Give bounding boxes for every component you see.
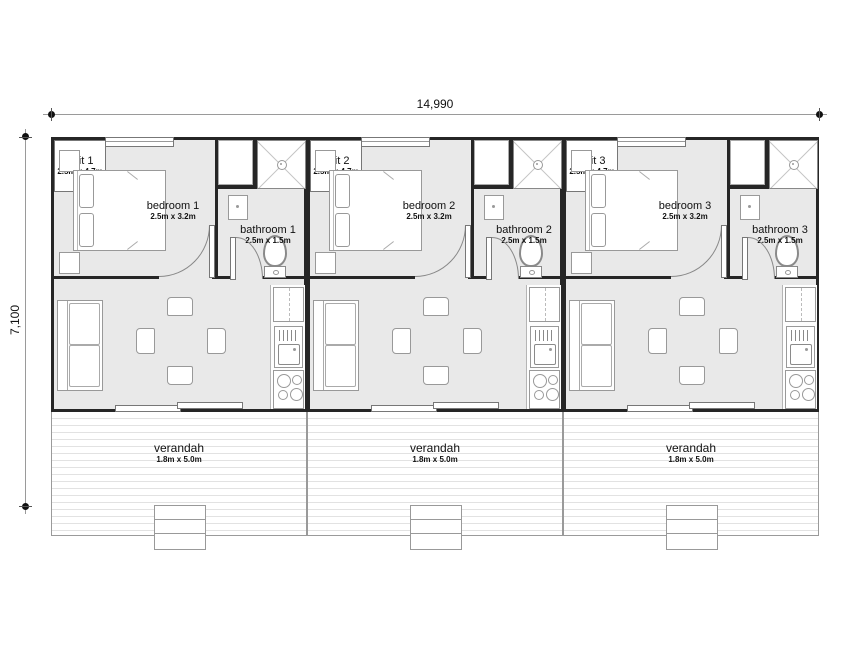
sliding-door-panel bbox=[689, 402, 755, 409]
chair bbox=[679, 297, 705, 316]
bench-dashed-line bbox=[289, 288, 290, 321]
window-glass-line bbox=[362, 141, 429, 142]
shower-drain-icon bbox=[533, 160, 543, 170]
dimension-tick bbox=[19, 137, 32, 138]
sofa-cushion bbox=[581, 345, 612, 387]
stove bbox=[273, 370, 304, 409]
interior-wall bbox=[566, 276, 671, 279]
width-dimension-line bbox=[43, 114, 827, 115]
bench-dashed-line bbox=[801, 288, 802, 321]
sofa-backrest bbox=[314, 301, 324, 390]
shower bbox=[257, 140, 306, 189]
drainboard-icon bbox=[535, 330, 554, 341]
bedside-table bbox=[315, 150, 336, 172]
bathroom-door bbox=[742, 237, 748, 280]
step-tread bbox=[667, 519, 717, 520]
bedroom-door bbox=[721, 225, 727, 278]
sofa bbox=[569, 300, 615, 391]
bedside-table bbox=[571, 252, 592, 274]
unit-floor: bedroom 3 2.5m x 3.2m bathroom 3 2.5m x … bbox=[563, 137, 819, 412]
steps bbox=[410, 505, 462, 550]
chair bbox=[136, 328, 155, 354]
tap-icon bbox=[805, 348, 808, 351]
sliding-door-panel bbox=[177, 402, 243, 409]
kitchenette bbox=[526, 285, 561, 409]
kitchenette bbox=[270, 285, 305, 409]
kitchen-sink bbox=[530, 326, 559, 368]
bedroom-door bbox=[465, 225, 471, 278]
bedside-table bbox=[571, 150, 592, 172]
interior-wall bbox=[310, 276, 415, 279]
unit-floor: bedroom 2 2.5m x 3.2m bathroom 2 2.5m x … bbox=[307, 137, 563, 412]
room-name: bathroom 2 bbox=[482, 224, 566, 236]
bathroom-sink bbox=[740, 195, 760, 220]
sink-bowl bbox=[278, 344, 300, 365]
dimension-tick bbox=[19, 506, 32, 507]
kitchen-bench bbox=[785, 287, 816, 322]
sliding-door-panel bbox=[371, 405, 437, 412]
burner-icon bbox=[533, 374, 547, 388]
sliding-door-panel bbox=[115, 405, 181, 412]
room-size: 1.8m x 5.0m bbox=[564, 455, 818, 465]
sofa-cushion bbox=[325, 303, 356, 345]
shower bbox=[769, 140, 818, 189]
dimension-tick bbox=[819, 108, 820, 121]
burner-icon bbox=[278, 390, 288, 400]
width-dimension-label: 14,990 bbox=[385, 97, 485, 111]
burner-icon bbox=[277, 374, 291, 388]
sofa bbox=[57, 300, 103, 391]
sofa-backrest bbox=[58, 301, 68, 390]
bedroom-door bbox=[209, 225, 215, 278]
unit-1: bedroom 1 2.5m x 3.2m bathroom 1 2.5m x … bbox=[51, 137, 307, 549]
steps bbox=[154, 505, 206, 550]
wardrobe bbox=[218, 140, 253, 185]
bedside-table bbox=[59, 150, 80, 172]
burner-icon bbox=[548, 375, 558, 385]
unit-2: bedroom 2 2.5m x 3.2m bathroom 2 2.5m x … bbox=[307, 137, 563, 549]
tap-icon bbox=[549, 348, 552, 351]
sink-bowl bbox=[790, 344, 812, 365]
burner-icon bbox=[546, 388, 559, 401]
chair bbox=[423, 297, 449, 316]
chair bbox=[167, 366, 193, 385]
chair bbox=[679, 366, 705, 385]
blanket-fold-line bbox=[639, 241, 650, 250]
burner-icon bbox=[804, 375, 814, 385]
sofa-backrest bbox=[570, 301, 580, 390]
step-tread bbox=[155, 533, 205, 534]
sliding-door-panel bbox=[433, 402, 499, 409]
room-size: 1.8m x 5.0m bbox=[52, 455, 306, 465]
bathroom-door bbox=[486, 237, 492, 280]
blanket-fold-line bbox=[383, 171, 394, 180]
toilet-tank bbox=[520, 266, 542, 278]
step-tread bbox=[411, 519, 461, 520]
sofa-cushion bbox=[325, 345, 356, 387]
wardrobe-wall bbox=[215, 185, 257, 189]
wardrobe bbox=[474, 140, 509, 185]
bedroom-door-arc bbox=[415, 225, 466, 277]
step-tread bbox=[667, 533, 717, 534]
burner-icon bbox=[790, 390, 800, 400]
kitchen-bench bbox=[529, 287, 560, 322]
toilet-tank bbox=[776, 266, 798, 278]
bathroom-sink bbox=[228, 195, 248, 220]
sink-drain-icon bbox=[748, 205, 751, 208]
sink-drain-icon bbox=[492, 205, 495, 208]
step-tread bbox=[411, 533, 461, 534]
room-name: bathroom 3 bbox=[738, 224, 822, 236]
blanket-fold-line bbox=[127, 171, 138, 180]
bathroom-sink bbox=[484, 195, 504, 220]
steps bbox=[666, 505, 718, 550]
kitchen-sink bbox=[786, 326, 815, 368]
burner-icon bbox=[292, 375, 302, 385]
drainboard-icon bbox=[791, 330, 810, 341]
sofa bbox=[313, 300, 359, 391]
kitchenette bbox=[782, 285, 817, 409]
bedroom-window bbox=[361, 137, 430, 147]
stove bbox=[529, 370, 560, 409]
toilet-button-icon bbox=[529, 270, 535, 275]
burner-icon bbox=[802, 388, 815, 401]
blanket-fold-line bbox=[639, 171, 650, 180]
kitchen-bench bbox=[273, 287, 304, 322]
bench-dashed-line bbox=[545, 288, 546, 321]
toilet-button-icon bbox=[785, 270, 791, 275]
toilet-tank bbox=[264, 266, 286, 278]
burner-icon bbox=[789, 374, 803, 388]
unit-floor: bedroom 1 2.5m x 3.2m bathroom 1 2.5m x … bbox=[51, 137, 307, 412]
sink-bowl bbox=[534, 344, 556, 365]
sofa-cushion bbox=[581, 303, 612, 345]
sliding-door-panel bbox=[627, 405, 693, 412]
toilet-button-icon bbox=[273, 270, 279, 275]
bedside-table bbox=[59, 252, 80, 274]
kitchen-sink bbox=[274, 326, 303, 368]
window-glass-line bbox=[106, 141, 173, 142]
drainboard-icon bbox=[279, 330, 298, 341]
step-tread bbox=[155, 519, 205, 520]
stove bbox=[785, 370, 816, 409]
bathroom-door bbox=[230, 237, 236, 280]
blanket-fold-line bbox=[383, 241, 394, 250]
chair bbox=[463, 328, 482, 354]
bedroom-door-arc bbox=[671, 225, 722, 277]
floor-plan: 14,990 7,100 bedroom 1 2.5m x 3 bbox=[0, 0, 847, 656]
sofa-cushion bbox=[69, 345, 100, 387]
height-dimension-label: 7,100 bbox=[8, 280, 22, 360]
room-name: verandah bbox=[564, 442, 818, 455]
sofa-cushion bbox=[69, 303, 100, 345]
room-name: verandah bbox=[52, 442, 306, 455]
shower-drain-icon bbox=[789, 160, 799, 170]
wardrobe-wall bbox=[727, 185, 769, 189]
window-glass-line bbox=[618, 141, 685, 142]
wardrobe bbox=[730, 140, 765, 185]
wardrobe-wall bbox=[471, 185, 513, 189]
burner-icon bbox=[534, 390, 544, 400]
shower-drain-icon bbox=[277, 160, 287, 170]
chair bbox=[392, 328, 411, 354]
blanket-fold-line bbox=[127, 241, 138, 250]
sink-drain-icon bbox=[236, 205, 239, 208]
room-size: 1.8m x 5.0m bbox=[308, 455, 562, 465]
chair bbox=[167, 297, 193, 316]
chair bbox=[423, 366, 449, 385]
dimension-tick bbox=[51, 108, 52, 121]
shower bbox=[513, 140, 562, 189]
burner-icon bbox=[290, 388, 303, 401]
chair bbox=[648, 328, 667, 354]
bedroom-door-arc bbox=[159, 225, 210, 277]
bedroom-window bbox=[617, 137, 686, 147]
bedroom-window bbox=[105, 137, 174, 147]
interior-wall bbox=[54, 276, 159, 279]
tap-icon bbox=[293, 348, 296, 351]
unit-3: bedroom 3 2.5m x 3.2m bathroom 3 2.5m x … bbox=[563, 137, 819, 549]
room-name: verandah bbox=[308, 442, 562, 455]
height-dimension-line bbox=[25, 129, 26, 514]
bedside-table bbox=[315, 252, 336, 274]
room-name: bathroom 1 bbox=[226, 224, 310, 236]
chair bbox=[207, 328, 226, 354]
chair bbox=[719, 328, 738, 354]
